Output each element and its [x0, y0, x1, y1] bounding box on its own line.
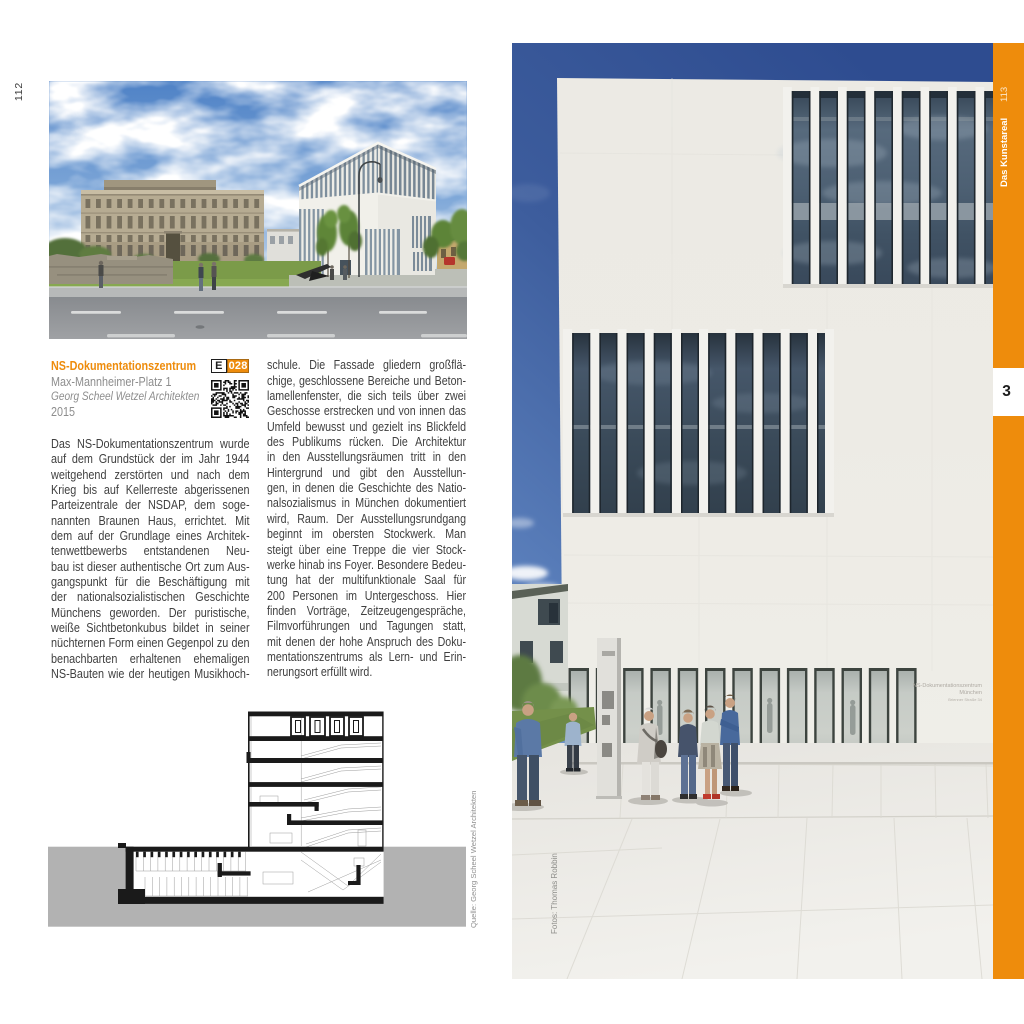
svg-text:Brienner Straße 34: Brienner Straße 34 [948, 697, 983, 702]
svg-text:München: München [959, 690, 982, 696]
svg-text:NS-Dokumentationszentrum: NS-Dokumentationszentrum [913, 683, 983, 689]
